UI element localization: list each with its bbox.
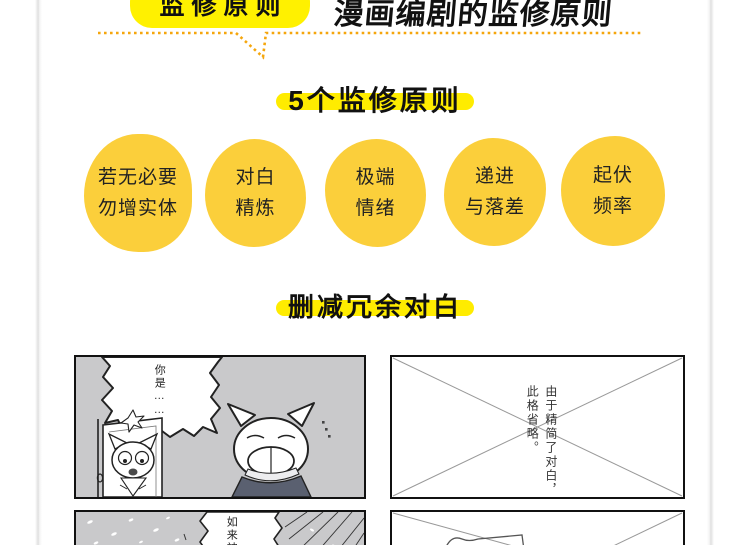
principle-4-line1: 递进 xyxy=(475,167,515,186)
comic-panel-4-illustration xyxy=(392,512,683,545)
principle-blob-4: 递进 与落差 xyxy=(444,138,546,246)
principles-heading: 5个监修原则 xyxy=(0,79,750,119)
principle-1-line2: 勿增实体 xyxy=(98,199,178,218)
principle-blob-5: 起伏 频率 xyxy=(561,136,665,246)
principle-5-line1: 起伏 xyxy=(593,166,633,185)
principle-4-line2: 与落差 xyxy=(465,198,525,217)
principle-3-line1: 极端 xyxy=(355,168,395,187)
principle-2-line1: 对白 xyxy=(235,168,275,187)
comic-panel-1-illustration xyxy=(76,357,364,497)
callout-dotted-line xyxy=(95,27,655,63)
omitted-note-line2: 此格省略。 xyxy=(523,385,542,497)
example-heading: 删减冗余对白 xyxy=(0,287,750,324)
comic-panel-1: 你是…… xyxy=(74,355,366,499)
comic-panel-4 xyxy=(390,510,685,545)
comic-panel-3: 如来神 xyxy=(74,510,366,545)
speech-bubble-text: 如来神 xyxy=(224,516,237,545)
topic-badge-label: 监修原则 xyxy=(152,0,287,22)
omitted-note-line1: 由于精简了对白， xyxy=(541,385,560,497)
principle-blob-3: 极端 情绪 xyxy=(325,139,426,247)
principle-1-line1: 若无必要 xyxy=(98,168,178,187)
principle-5-line2: 频率 xyxy=(593,197,633,216)
topic-badge: 监修原则 xyxy=(130,0,310,28)
principle-blob-1: 若无必要 勿增实体 xyxy=(84,134,192,252)
page: 监修原则 漫画编剧的监修原则 5个监修原则 若无必要 勿增实体 对白 精炼 极端… xyxy=(0,0,750,545)
principle-blob-2: 对白 精炼 xyxy=(205,139,306,247)
principle-3-line2: 情绪 xyxy=(355,199,395,218)
comic-panel-2: 由于精简了对白， 此格省略。 xyxy=(390,355,685,499)
speech-bubble-text: 你是…… xyxy=(152,364,165,418)
comic-panel-3-illustration xyxy=(76,512,364,545)
principle-2-line2: 精炼 xyxy=(235,199,275,218)
principles-heading-text: 5个监修原则 xyxy=(288,85,462,116)
example-heading-text: 删减冗余对白 xyxy=(288,292,462,322)
omitted-panel-note: 由于精简了对白， 此格省略。 xyxy=(523,385,560,497)
